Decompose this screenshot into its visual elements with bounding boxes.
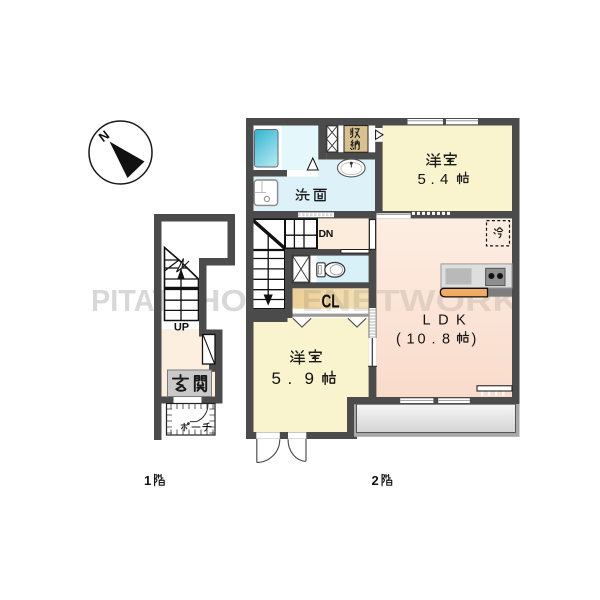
svg-text:0: 0: [418, 332, 426, 348]
svg-text:LDK: LDK: [423, 313, 474, 329]
svg-text:CL: CL: [322, 292, 340, 312]
svg-text:(: (: [396, 332, 401, 348]
svg-text:.: .: [431, 171, 435, 188]
svg-text:5: 5: [272, 369, 281, 388]
svg-text:1: 1: [144, 473, 151, 488]
svg-text:DN: DN: [319, 228, 334, 240]
svg-text:4: 4: [440, 171, 448, 188]
svg-text:8: 8: [442, 332, 450, 348]
svg-text:): ): [472, 332, 477, 348]
svg-text:.: .: [288, 369, 293, 388]
svg-text:1: 1: [407, 332, 415, 348]
svg-text:5: 5: [418, 171, 426, 188]
svg-text:UP: UP: [174, 322, 189, 334]
svg-text:2: 2: [372, 473, 379, 488]
svg-text:.: .: [432, 332, 436, 348]
svg-text:9: 9: [305, 369, 314, 388]
